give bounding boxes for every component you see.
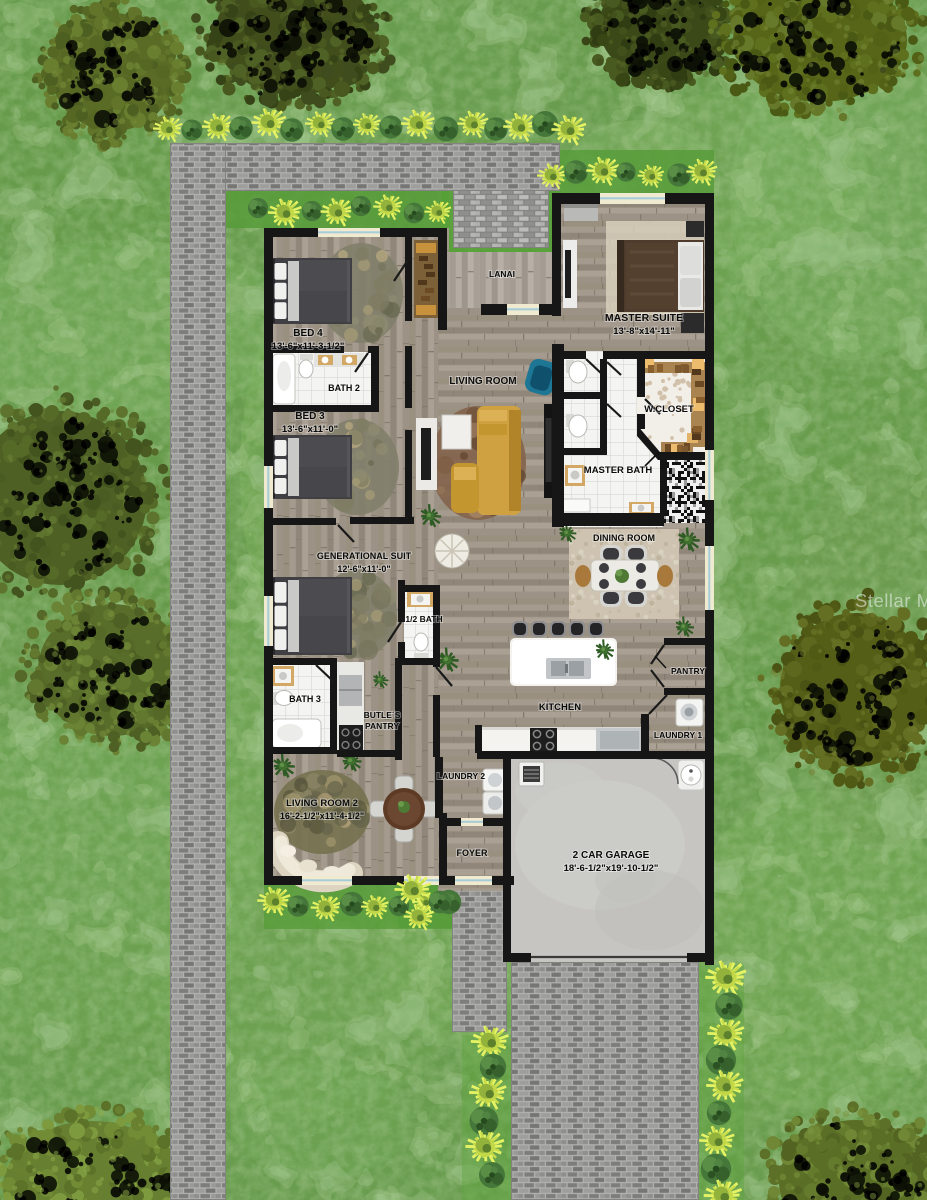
svg-text:FOYER: FOYER xyxy=(456,848,488,858)
svg-text:PANTRY: PANTRY xyxy=(671,666,705,676)
svg-text:Stellar MLS: Stellar MLS xyxy=(855,590,927,611)
svg-text:16'-2-1/2"x11'-4-1/2": 16'-2-1/2"x11'-4-1/2" xyxy=(280,811,364,821)
svg-text:BUTLE´S: BUTLE´S xyxy=(364,710,401,720)
svg-text:MASTER BATH: MASTER BATH xyxy=(584,465,653,476)
svg-text:BATH 2: BATH 2 xyxy=(328,383,360,393)
svg-text:KITCHEN: KITCHEN xyxy=(539,702,581,713)
svg-text:PANTRY: PANTRY xyxy=(365,721,399,731)
svg-text:12'-6"x11'-0": 12'-6"x11'-0" xyxy=(337,564,390,574)
svg-text:1/2 BATH: 1/2 BATH xyxy=(405,614,442,624)
svg-text:W.CLOSET: W.CLOSET xyxy=(644,404,694,415)
svg-text:MASTER SUITE: MASTER SUITE xyxy=(605,312,683,324)
svg-text:LAUNDRY 2: LAUNDRY 2 xyxy=(437,771,485,781)
svg-text:GENERATIONAL SUIT: GENERATIONAL SUIT xyxy=(317,551,412,561)
svg-text:18'-6-1/2"x19'-10-1/2": 18'-6-1/2"x19'-10-1/2" xyxy=(564,863,659,874)
svg-text:BATH 3: BATH 3 xyxy=(289,694,321,704)
svg-text:2 CAR GARAGE: 2 CAR GARAGE xyxy=(573,850,650,861)
svg-text:13'-6"x11'-3-1/2": 13'-6"x11'-3-1/2" xyxy=(272,341,345,352)
svg-text:DINING ROOM: DINING ROOM xyxy=(593,533,655,543)
svg-text:13'-6"x11'-0": 13'-6"x11'-0" xyxy=(282,424,338,435)
svg-text:LAUNDRY 1: LAUNDRY 1 xyxy=(654,730,702,740)
svg-text:LIVING ROOM: LIVING ROOM xyxy=(449,376,516,387)
svg-text:13'-8"x14'-11": 13'-8"x14'-11" xyxy=(613,326,675,337)
svg-text:BED 3: BED 3 xyxy=(295,411,325,422)
svg-text:BED 4: BED 4 xyxy=(293,328,323,339)
svg-text:LIVING ROOM 2: LIVING ROOM 2 xyxy=(286,798,358,809)
svg-text:LANAI: LANAI xyxy=(489,269,515,279)
